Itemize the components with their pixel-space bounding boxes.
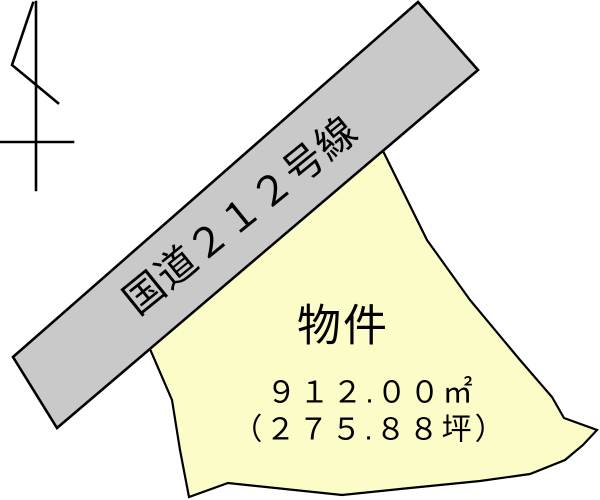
parcel-area-m2: ９１２.００㎡ <box>266 377 475 410</box>
site-map: 国道２１２号線 物件 ９１２.００㎡ （２７５.８８坪） <box>0 0 600 500</box>
parcel-area-tsubo: （２７５.８８坪） <box>232 414 507 447</box>
parcel-title: 物件 <box>297 302 389 351</box>
